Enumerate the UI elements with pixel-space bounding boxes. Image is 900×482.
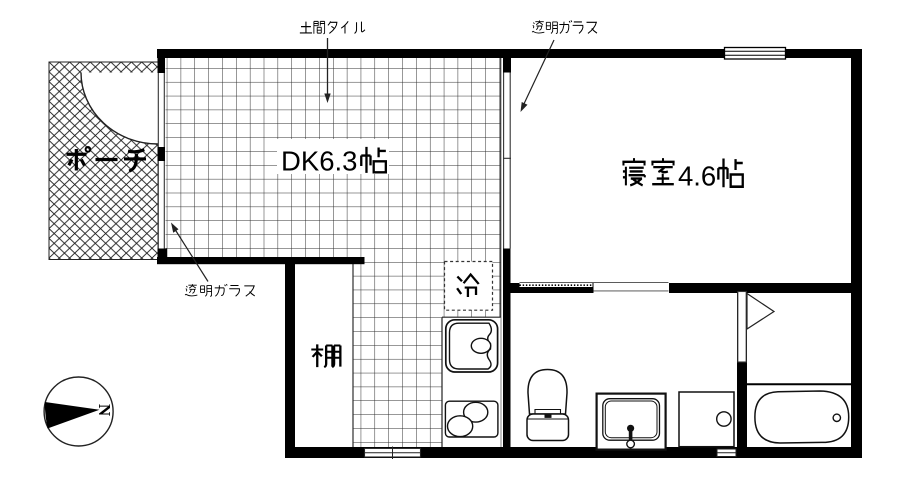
svg-text:4.6: 4.6 xyxy=(678,161,716,192)
svg-text:N: N xyxy=(95,404,114,417)
svg-text:DK6.3: DK6.3 xyxy=(281,146,357,177)
